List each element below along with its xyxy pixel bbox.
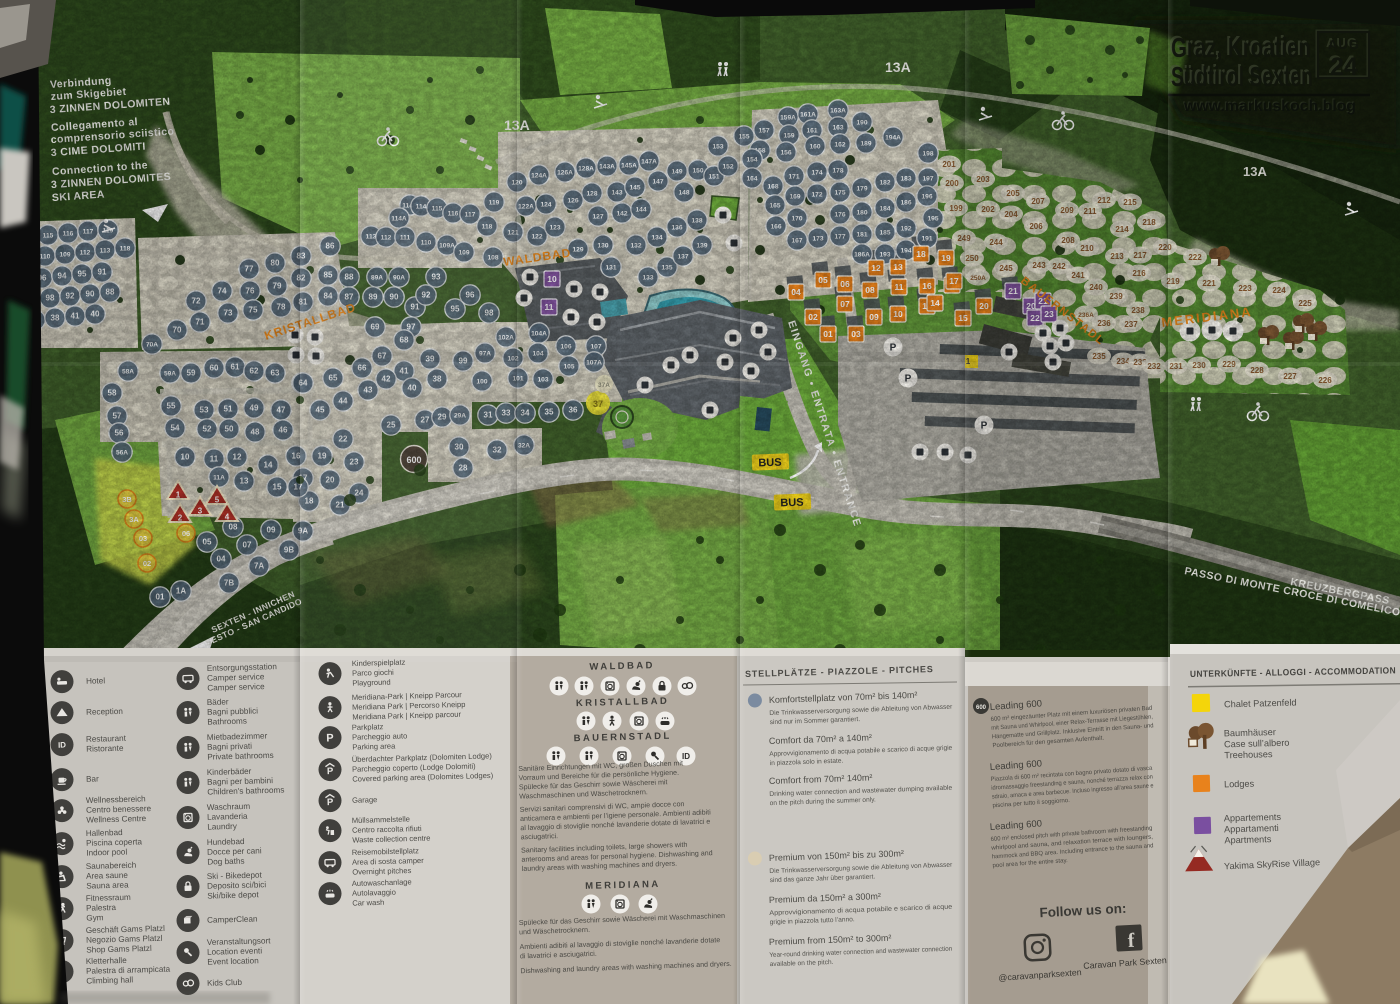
svg-text:Car wash: Car wash bbox=[352, 898, 384, 908]
svg-text:Treehouses: Treehouses bbox=[1224, 749, 1273, 760]
svg-text:Ristorante: Ristorante bbox=[86, 744, 124, 754]
svg-text:Dog baths: Dog baths bbox=[207, 857, 245, 867]
svg-text:Restaurant: Restaurant bbox=[86, 734, 127, 744]
svg-text:Autolavaggio: Autolavaggio bbox=[352, 888, 396, 898]
svg-text:24: 24 bbox=[1330, 53, 1358, 81]
svg-text:Ski - Bikedepot: Ski - Bikedepot bbox=[207, 871, 263, 881]
svg-text:Event location: Event location bbox=[207, 956, 259, 966]
svg-text:Deposito sci/bici: Deposito sci/bici bbox=[207, 880, 267, 891]
svg-text:Entsorgungsstation: Entsorgungsstation bbox=[207, 662, 278, 673]
svg-text:Case sull’albero: Case sull’albero bbox=[1224, 738, 1290, 750]
svg-text:Camper service: Camper service bbox=[207, 672, 265, 683]
svg-text:Palestra: Palestra bbox=[86, 903, 117, 913]
svg-text:Kids Club: Kids Club bbox=[207, 978, 243, 988]
svg-text:Chalet Patzenfeld: Chalet Patzenfeld bbox=[1224, 697, 1297, 709]
svg-text:Wellness Centre: Wellness Centre bbox=[86, 814, 147, 825]
svg-text:Bathrooms: Bathrooms bbox=[207, 717, 247, 727]
svg-text:MERIDIANA: MERIDIANA bbox=[585, 879, 661, 892]
svg-text:Laundry: Laundry bbox=[207, 822, 238, 832]
svg-text:Appartamenti: Appartamenti bbox=[1224, 823, 1279, 834]
svg-text:Shop Gams Platzl: Shop Gams Platzl bbox=[86, 944, 152, 955]
svg-text:Location eventi: Location eventi bbox=[207, 946, 262, 956]
svg-text:600: 600 bbox=[976, 705, 987, 711]
svg-text:Baumhäuser: Baumhäuser bbox=[1224, 727, 1276, 738]
svg-text:Autowaschanlage: Autowaschanlage bbox=[352, 877, 412, 888]
svg-text:Indoor pool: Indoor pool bbox=[86, 848, 127, 858]
svg-text:Mietbadezimmer: Mietbadezimmer bbox=[207, 731, 268, 742]
svg-text:Südtirol Sexten: Südtirol Sexten bbox=[1171, 61, 1313, 92]
svg-text:Playground: Playground bbox=[352, 678, 391, 688]
svg-text:P: P bbox=[327, 797, 334, 808]
svg-text:P: P bbox=[327, 766, 334, 777]
svg-text:Lavanderia: Lavanderia bbox=[207, 812, 248, 822]
svg-text:Hallenbad: Hallenbad bbox=[86, 828, 124, 838]
svg-text:Fitnessraum: Fitnessraum bbox=[86, 893, 131, 903]
svg-text:Kinderbäder: Kinderbäder bbox=[207, 767, 252, 777]
svg-text:Docce per cani: Docce per cani bbox=[207, 846, 262, 856]
svg-text:Müllsammelstelle: Müllsammelstelle bbox=[352, 814, 410, 825]
svg-text:Parcheggio auto: Parcheggio auto bbox=[352, 731, 408, 741]
svg-text:Appartements: Appartements bbox=[1224, 812, 1282, 824]
svg-text:P: P bbox=[326, 732, 334, 744]
svg-text:Bar: Bar bbox=[86, 774, 99, 783]
svg-text:Private bathrooms: Private bathrooms bbox=[207, 751, 274, 762]
svg-text:asciugatrici.: asciugatrici. bbox=[521, 832, 559, 841]
svg-text:Area saune: Area saune bbox=[86, 871, 129, 881]
svg-text:Climbing hall: Climbing hall bbox=[86, 975, 133, 985]
svg-text:Reception: Reception bbox=[86, 707, 124, 717]
svg-text:Waschraum: Waschraum bbox=[207, 802, 251, 812]
svg-text:Apartments: Apartments bbox=[1224, 834, 1272, 845]
svg-text:ID: ID bbox=[58, 741, 66, 750]
svg-text:Area di sosta camper: Area di sosta camper bbox=[352, 856, 424, 867]
svg-text:Camper service: Camper service bbox=[207, 682, 265, 693]
svg-text:Lodges: Lodges bbox=[1224, 779, 1255, 790]
svg-text:Bagni privati: Bagni privati bbox=[207, 742, 252, 752]
svg-text:Wellnessbereich: Wellnessbereich bbox=[86, 794, 147, 805]
svg-text:WALDBAD: WALDBAD bbox=[589, 660, 655, 673]
svg-text:Piscina coperta: Piscina coperta bbox=[86, 837, 143, 847]
svg-text:Parco giochi: Parco giochi bbox=[352, 668, 394, 678]
svg-text:Garage: Garage bbox=[352, 795, 378, 805]
svg-text:www.markuskoch.blog: www.markuskoch.blog bbox=[1183, 98, 1356, 115]
svg-text:AUG: AUG bbox=[1328, 37, 1360, 52]
svg-text:Bäder: Bäder bbox=[207, 697, 229, 707]
svg-text:Saunabereich: Saunabereich bbox=[86, 861, 137, 871]
svg-text:Sauna area: Sauna area bbox=[86, 880, 129, 890]
svg-text:Hundebad: Hundebad bbox=[207, 837, 245, 847]
svg-text:Kletterhalle: Kletterhalle bbox=[86, 956, 128, 966]
svg-text:ID: ID bbox=[682, 752, 690, 761]
svg-text:Parkplatz: Parkplatz bbox=[352, 722, 384, 732]
svg-text:Ski/bike depot: Ski/bike depot bbox=[207, 890, 259, 900]
svg-text:CamperClean: CamperClean bbox=[207, 914, 258, 924]
svg-text:Parking area: Parking area bbox=[352, 741, 396, 751]
svg-text:Gym: Gym bbox=[86, 913, 104, 922]
svg-text:Bagni pubblici: Bagni pubblici bbox=[207, 706, 258, 716]
svg-text:Hotel: Hotel bbox=[86, 676, 106, 686]
svg-text:Overnight pitches: Overnight pitches bbox=[352, 866, 412, 877]
